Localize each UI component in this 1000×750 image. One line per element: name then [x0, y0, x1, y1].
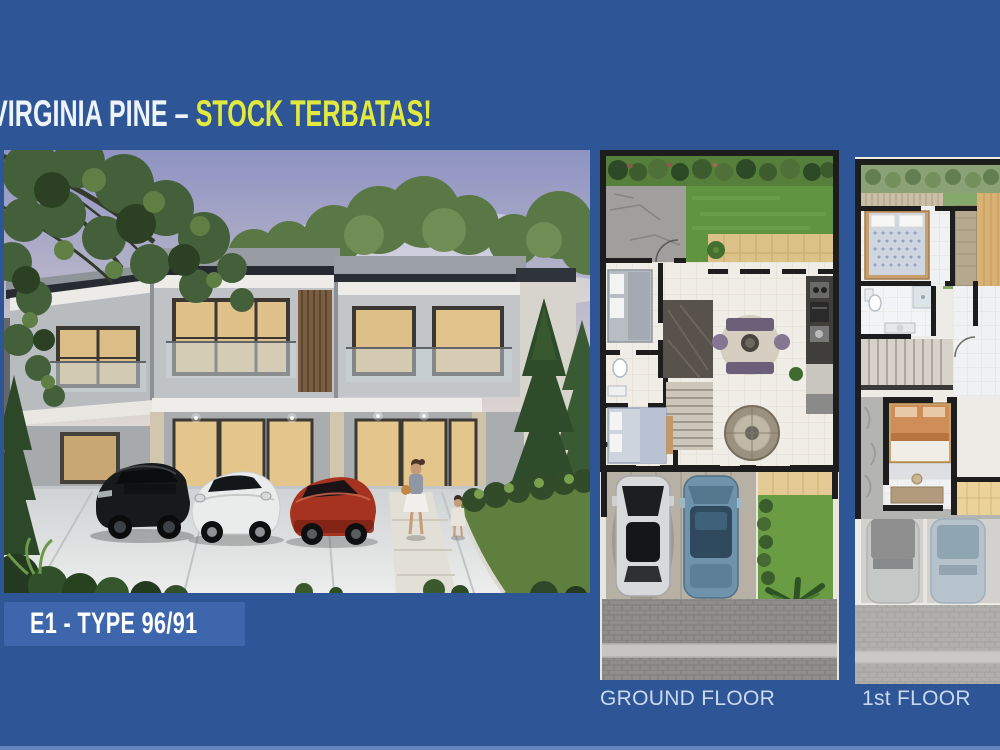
first-floor-plan	[855, 157, 1000, 684]
ground-floor-label: GROUND FLOOR	[600, 687, 775, 711]
gf-stone-path	[606, 186, 686, 262]
bottom-edge-strip	[0, 746, 1000, 750]
townhouse-render-image	[4, 150, 590, 593]
ff-street	[855, 605, 1000, 684]
first-floor-label: 1st FLOOR	[862, 687, 971, 711]
ff-bathroom	[861, 286, 933, 336]
first-floor-plan-image	[855, 157, 1000, 684]
townhouse-facades	[4, 248, 576, 493]
unit-type-badge: E1 - TYPE 96/91	[4, 602, 245, 646]
ff-roof-band	[861, 193, 943, 206]
townhouse-photo	[4, 150, 590, 593]
project-name-text: VIRGINIA PINE –	[0, 93, 196, 134]
ff-stairs	[861, 339, 953, 390]
ground-floor-plan-image	[600, 150, 839, 680]
ff-wardrobe	[955, 206, 977, 286]
ground-floor-plan	[600, 150, 839, 680]
unit-type-label: E1 - TYPE 96/91	[30, 607, 197, 641]
stock-warning-text: STOCK TERBATAS!	[196, 93, 432, 134]
gf-interior	[606, 258, 836, 471]
ff-bedroom2	[861, 206, 955, 286]
slide-title: VIRGINIA PINE – STOCK TERBATAS!	[0, 94, 432, 135]
ff-balcony	[957, 481, 1000, 515]
gf-garden	[606, 156, 836, 186]
gf-carport	[606, 471, 756, 602]
gf-street	[602, 599, 837, 680]
presentation-slide: VIRGINIA PINE – STOCK TERBATAS!	[0, 0, 1000, 750]
ff-carport-view	[861, 519, 1000, 603]
ff-master-bedroom	[885, 401, 955, 509]
